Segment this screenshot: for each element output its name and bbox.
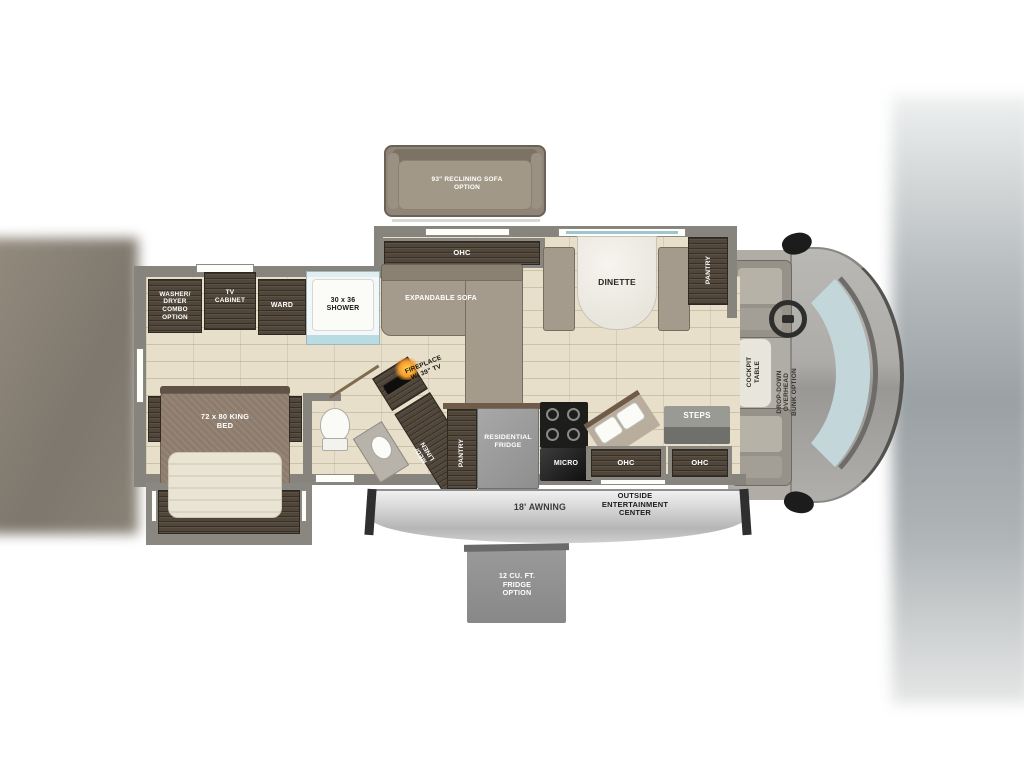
bed-blanket [168, 452, 282, 518]
nightstand-right [289, 396, 302, 442]
reclining-sofa-option-label: 93" RECLINING SOFA OPTION [430, 174, 504, 194]
awning-label: 18' AWNING [495, 501, 585, 513]
bath-window [315, 474, 355, 483]
awning-bar [370, 489, 746, 543]
wardrobe-label: WARD [258, 300, 306, 312]
rv-floorplan-diagram: 93" RECLINING SOFA OPTION COCKPIT TABLE … [0, 0, 1024, 768]
microwave-label: MICRO [540, 458, 592, 470]
kitchen-ohc-right-label: OHC [672, 457, 728, 469]
left-photo-blur [0, 238, 138, 534]
slide-right-wall [727, 226, 737, 318]
passenger-seat-cushion [738, 416, 782, 452]
rear-wall-window [136, 348, 144, 403]
dinette-label: DINETTE [577, 276, 657, 288]
bath-wall-vertical [303, 393, 312, 474]
expandable-sofa-label: EXPANDABLE SOFA [385, 293, 497, 305]
pantry-top-label: PANTRY [703, 250, 715, 290]
tv-cabinet-label: TV CABINET [212, 288, 248, 306]
nightstand-left [148, 396, 161, 442]
burner-3-icon [546, 428, 559, 441]
outside-entertainment-label: OUTSIDE ENTERTAINMENT CENTER [594, 490, 676, 520]
burner-2-icon [567, 408, 580, 421]
king-bed-label: 72 x 80 KING BED [199, 412, 251, 432]
dinette-bench-left [543, 247, 575, 331]
bed-slide-window-right [301, 490, 307, 522]
shower-top-accent [307, 272, 379, 277]
right-photo-blur [892, 96, 1024, 704]
dinette-window-glass [566, 231, 678, 234]
reclining-sofa-option: 93" RECLINING SOFA OPTION [384, 145, 546, 217]
entry-steps-label: STEPS [664, 409, 730, 423]
awning-end-cap-left [364, 489, 376, 536]
shower-bottom-accent [307, 335, 379, 344]
washer-dryer-label: WASHER/ DRYER COMBO OPTION [151, 283, 199, 329]
burner-1-icon [546, 408, 559, 421]
sofa-arm-right [531, 153, 542, 209]
shower-label: 30 x 36 SHOWER [318, 294, 368, 316]
residential-fridge-label: RESIDENTIAL FRIDGE [482, 432, 534, 452]
dinette-bench-right [658, 247, 690, 331]
burner-4-icon [567, 428, 580, 441]
sofa-ohc-label: OHC [384, 246, 540, 260]
driver-seat-cushion [738, 268, 782, 304]
kitchen-ohc-left-label: OHC [591, 457, 661, 469]
fridge-option-label: 12 CU. FT. FRIDGE OPTION [493, 568, 541, 602]
steering-wheel-hub [782, 315, 794, 323]
slide-window-left [425, 228, 510, 236]
toilet-bowl-icon [320, 408, 350, 442]
toilet-tank [322, 438, 348, 451]
overhead-bunk-option-label: DROP-DOWN OVERHEAD BUNK OPTION [776, 363, 798, 421]
sofa-option-shadow [392, 219, 540, 222]
kitchen-pantry-label: PANTRY [456, 433, 468, 473]
cockpit-table-label: COCKPIT TABLE [746, 355, 762, 389]
bed-slide-window-left [151, 490, 157, 522]
